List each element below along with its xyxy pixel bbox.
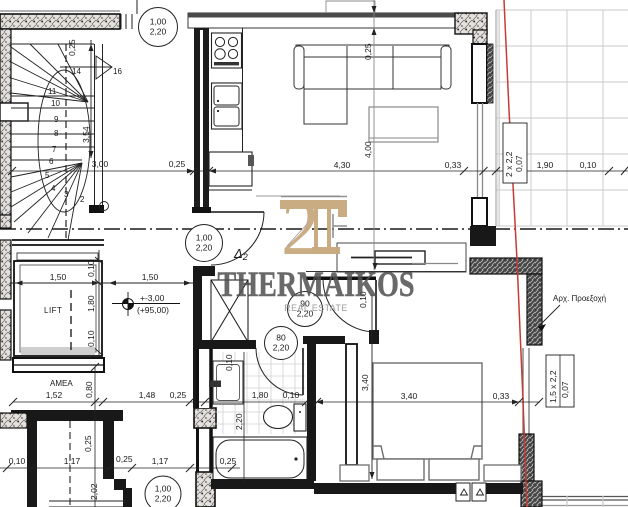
svg-text:0,07: 0,07 xyxy=(514,155,524,172)
svg-text:(+95,00): (+95,00) xyxy=(137,305,169,315)
svg-text:2,20: 2,20 xyxy=(273,343,290,353)
svg-text:80: 80 xyxy=(276,333,286,343)
svg-text:1,52: 1,52 xyxy=(46,390,63,400)
svg-text:+-3,00: +-3,00 xyxy=(140,293,165,303)
svg-text:4,30: 4,30 xyxy=(334,160,351,170)
svg-text:5: 5 xyxy=(45,171,50,180)
svg-text:1,17: 1,17 xyxy=(152,456,169,466)
svg-text:3,40: 3,40 xyxy=(360,374,370,391)
svg-text:1,00: 1,00 xyxy=(155,484,172,494)
svg-text:8: 8 xyxy=(54,129,59,138)
svg-text:7: 7 xyxy=(52,145,57,154)
svg-text:3,54: 3,54 xyxy=(81,126,91,143)
svg-text:2: 2 xyxy=(80,195,85,204)
svg-text:0,25: 0,25 xyxy=(170,390,187,400)
svg-text:4: 4 xyxy=(51,184,56,193)
svg-text:2,20: 2,20 xyxy=(155,494,172,504)
svg-text:3,40: 3,40 xyxy=(401,391,418,401)
svg-text:1,5 x 2,2: 1,5 x 2,2 xyxy=(548,370,558,403)
svg-text:LIFT: LIFT xyxy=(44,306,62,315)
svg-text:1,00: 1,00 xyxy=(196,233,213,243)
svg-text:2,02: 2,02 xyxy=(89,483,99,500)
svg-text:Αρχ. Προεξοχή: Αρχ. Προεξοχή xyxy=(553,294,606,303)
svg-text:2,20: 2,20 xyxy=(196,243,213,253)
svg-text:1,17: 1,17 xyxy=(64,456,81,466)
svg-text:0,10: 0,10 xyxy=(9,456,26,466)
svg-text:0,10: 0,10 xyxy=(86,260,96,277)
svg-text:0,25: 0,25 xyxy=(169,159,186,169)
svg-text:0,80: 0,80 xyxy=(84,381,94,398)
svg-text:ΑΜΕΑ: ΑΜΕΑ xyxy=(50,379,73,388)
svg-text:4,00: 4,00 xyxy=(363,141,373,158)
svg-text:1,00: 1,00 xyxy=(150,17,167,27)
svg-text:1,48: 1,48 xyxy=(139,390,156,400)
svg-text:2 x 2,2: 2 x 2,2 xyxy=(504,151,514,177)
svg-text:16: 16 xyxy=(113,67,122,76)
svg-text:1,90: 1,90 xyxy=(537,160,554,170)
svg-text:0,25: 0,25 xyxy=(67,39,77,56)
svg-text:1,50: 1,50 xyxy=(142,272,159,282)
svg-text:3,00: 3,00 xyxy=(92,159,109,169)
svg-text:0,10: 0,10 xyxy=(224,354,234,371)
svg-text:6: 6 xyxy=(49,157,54,166)
svg-text:1,80: 1,80 xyxy=(86,295,96,312)
svg-text:1,50: 1,50 xyxy=(50,272,67,282)
svg-text:0,10: 0,10 xyxy=(580,160,597,170)
svg-text:2,20: 2,20 xyxy=(234,413,244,430)
svg-text:0,25: 0,25 xyxy=(220,456,237,466)
svg-text:10: 10 xyxy=(51,99,60,108)
svg-text:9: 9 xyxy=(54,115,59,124)
svg-text:2,20: 2,20 xyxy=(150,27,167,37)
svg-text:THERMAIKOS: THERMAIKOS xyxy=(218,264,415,304)
svg-text:0,25: 0,25 xyxy=(83,435,93,452)
svg-text:1,80: 1,80 xyxy=(252,390,269,400)
svg-text:0,25: 0,25 xyxy=(363,43,373,60)
svg-text:0,25: 0,25 xyxy=(116,454,133,464)
svg-text:0,33: 0,33 xyxy=(445,160,462,170)
svg-text:0,33: 0,33 xyxy=(493,391,510,401)
svg-text:11: 11 xyxy=(48,87,57,96)
svg-text:0,07: 0,07 xyxy=(560,381,570,398)
svg-text:0,10: 0,10 xyxy=(283,390,300,400)
svg-text:3: 3 xyxy=(64,190,69,199)
svg-text:14: 14 xyxy=(72,67,81,76)
svg-text:0,10: 0,10 xyxy=(86,330,96,347)
svg-text:REAL ESTATE: REAL ESTATE xyxy=(284,303,348,313)
